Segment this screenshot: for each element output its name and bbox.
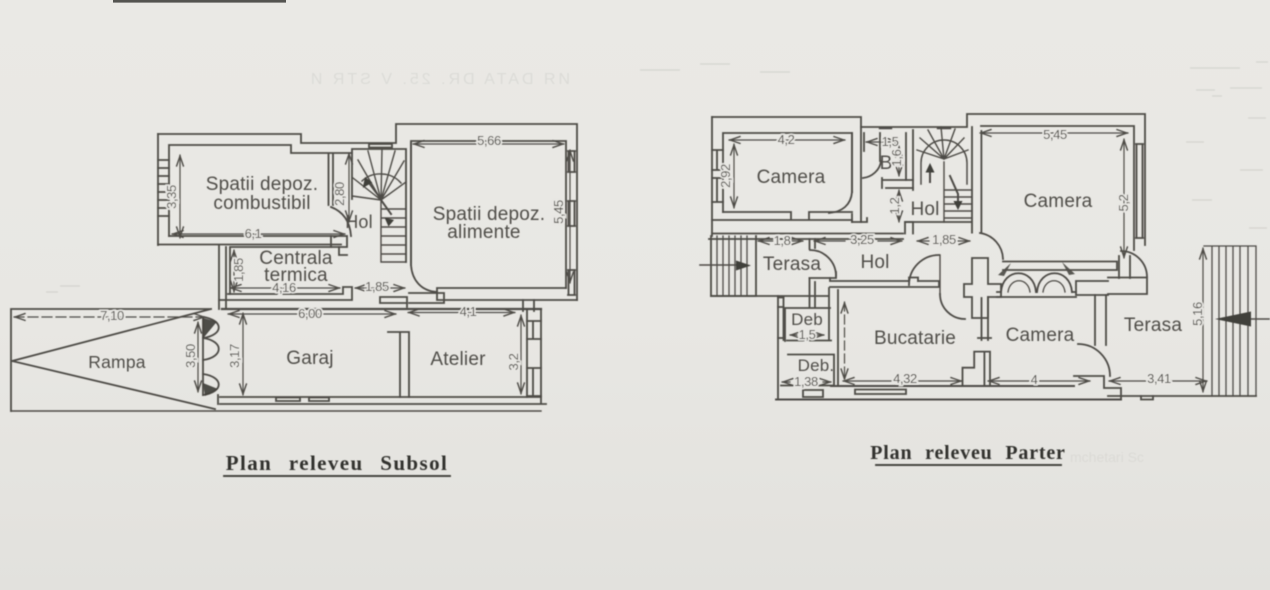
svg-text:Hol: Hol	[345, 212, 373, 232]
svg-text:ИЯ DATA DR. 25. V STR И: ИЯ DATA DR. 25. V STR И	[308, 71, 570, 88]
svg-text:combustibil: combustibil	[213, 193, 310, 214]
svg-text:1,85: 1,85	[932, 232, 956, 247]
svg-text:3,17: 3,17	[227, 344, 242, 368]
svg-text:3,50: 3,50	[183, 344, 198, 368]
svg-text:Camera: Camera	[1006, 325, 1075, 346]
svg-text:1,5: 1,5	[799, 327, 816, 342]
svg-text:1,5: 1,5	[882, 134, 899, 149]
svg-text:Garaj: Garaj	[286, 348, 333, 369]
svg-text:Camera: Camera	[757, 167, 826, 188]
svg-text:Terasa: Terasa	[1124, 315, 1182, 336]
svg-text:4,2: 4,2	[778, 132, 795, 147]
svg-text:7,10: 7,10	[100, 308, 124, 323]
svg-text:2,80: 2,80	[332, 182, 347, 206]
svg-text:1,2: 1,2	[887, 197, 902, 214]
svg-text:4,16: 4,16	[272, 280, 296, 295]
svg-text:1,8: 1,8	[774, 233, 791, 248]
svg-text:Plan releveu Parter: Plan releveu Parter	[870, 442, 1065, 464]
svg-text:Terasa: Terasa	[763, 254, 821, 275]
svg-text:5,45: 5,45	[1043, 127, 1067, 142]
svg-text:1,85: 1,85	[231, 258, 246, 282]
svg-text:2,92: 2,92	[718, 164, 733, 188]
svg-text:Deb.: Deb.	[798, 356, 835, 375]
svg-text:3,35: 3,35	[164, 185, 179, 209]
svg-text:Camera: Camera	[1024, 191, 1093, 212]
svg-text:Rampa: Rampa	[88, 352, 145, 372]
svg-text:alimente: alimente	[447, 222, 520, 243]
svg-text:6,00: 6,00	[298, 306, 322, 321]
svg-text:1,6: 1,6	[889, 149, 904, 166]
svg-text:Plan releveu Subsol: Plan releveu Subsol	[226, 451, 448, 475]
svg-text:3,25: 3,25	[850, 232, 874, 247]
svg-text:Spatii depoz.: Spatii depoz.	[206, 174, 318, 195]
svg-text:Hol: Hol	[860, 252, 889, 273]
svg-text:4,32: 4,32	[893, 371, 917, 386]
svg-text:4: 4	[1031, 372, 1038, 387]
svg-text:5,16: 5,16	[1190, 302, 1205, 326]
svg-text:Bucatarie: Bucatarie	[874, 328, 956, 349]
svg-text:4,1: 4,1	[460, 304, 477, 319]
svg-text:Hol: Hol	[910, 199, 939, 220]
svg-text:Atelier: Atelier	[430, 349, 486, 370]
svg-text:3,41: 3,41	[1147, 371, 1171, 386]
svg-text:3,2: 3,2	[506, 353, 521, 370]
svg-text:5,45: 5,45	[551, 200, 566, 224]
svg-text:1,85: 1,85	[365, 279, 389, 294]
svg-text:1,38: 1,38	[794, 374, 818, 389]
svg-text:5,66: 5,66	[477, 133, 501, 148]
svg-text:5,2: 5,2	[1116, 194, 1131, 211]
svg-text:6,1: 6,1	[245, 226, 262, 241]
svg-text:mchetari Sc: mchetari Sc	[1070, 449, 1144, 465]
